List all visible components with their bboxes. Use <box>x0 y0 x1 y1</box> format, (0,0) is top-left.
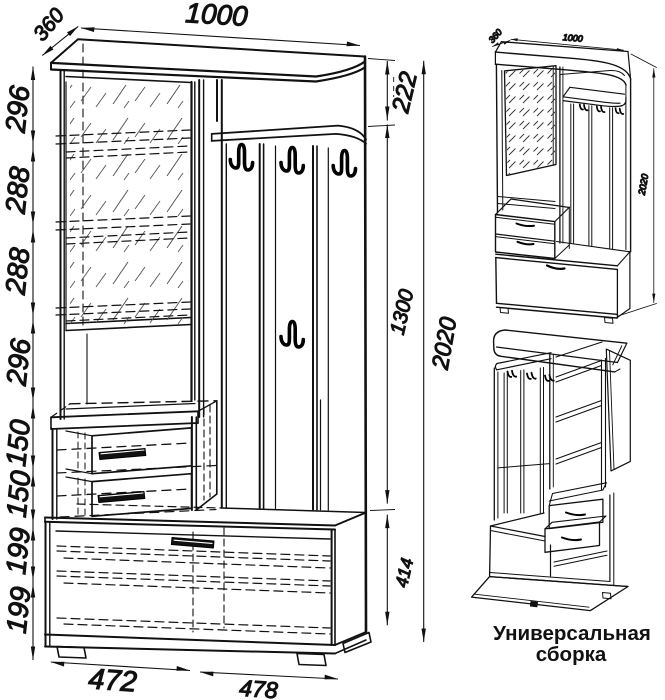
svg-text:478: 478 <box>239 675 279 700</box>
svg-text:296: 296 <box>1 337 37 388</box>
svg-text:150: 150 <box>1 469 37 519</box>
svg-text:296: 296 <box>0 84 35 135</box>
svg-text:Универсальная: Универсальная <box>493 622 651 645</box>
svg-text:288: 288 <box>0 246 35 297</box>
svg-text:288: 288 <box>0 165 35 216</box>
svg-text:1000: 1000 <box>185 0 249 32</box>
svg-text:199: 199 <box>1 585 37 635</box>
svg-text:150: 150 <box>0 418 36 468</box>
svg-text:1000: 1000 <box>562 32 583 44</box>
svg-text:сборка: сборка <box>536 643 607 666</box>
svg-text:472: 472 <box>87 663 138 698</box>
svg-text:199: 199 <box>0 526 36 576</box>
